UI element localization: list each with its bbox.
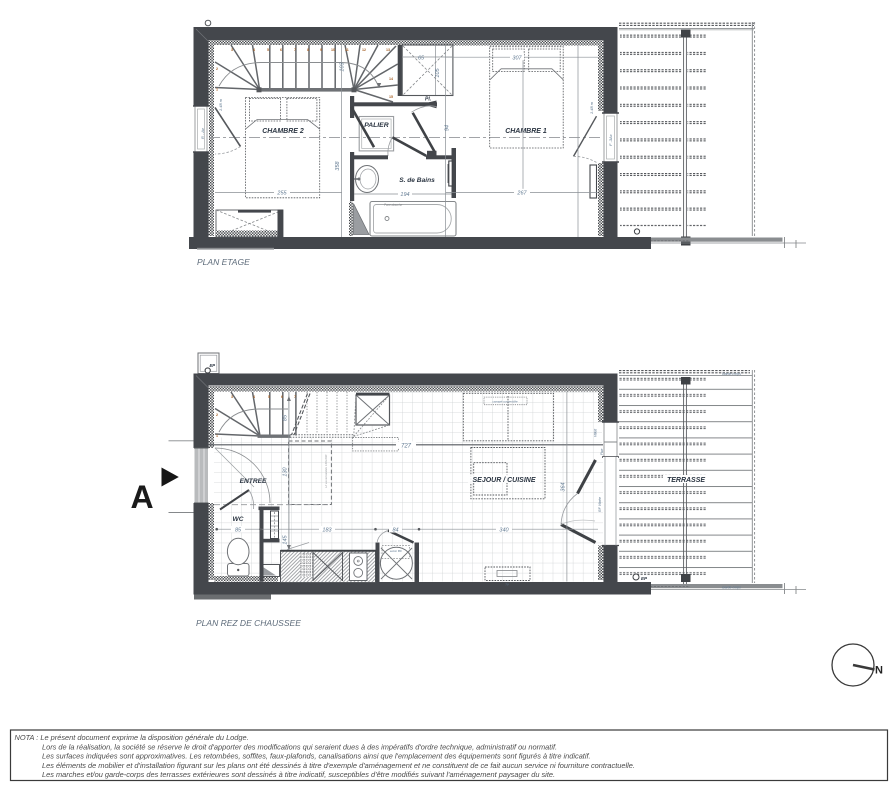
svg-text:5: 5 — [268, 395, 270, 399]
svg-text:105: 105 — [435, 67, 441, 77]
svg-text:183: 183 — [322, 528, 332, 534]
svg-text:PALIER: PALIER — [364, 122, 389, 129]
svg-text:12: 12 — [362, 48, 366, 52]
svg-text:255: 255 — [276, 190, 287, 196]
svg-text:A: A — [131, 479, 154, 515]
svg-text:CHAMBRE 2: CHAMBRE 2 — [262, 128, 304, 135]
svg-text:94: 94 — [445, 125, 451, 131]
svg-text:1: 1 — [216, 88, 218, 92]
svg-text:85: 85 — [283, 414, 289, 421]
svg-text:PLAN ETAGE: PLAN ETAGE — [197, 257, 250, 267]
svg-text:SEJOUR / CUISINE: SEJOUR / CUISINE — [472, 477, 535, 484]
svg-text:85: 85 — [235, 528, 242, 534]
svg-text:TERRASSE: TERRASSE — [667, 477, 705, 484]
svg-text:3: 3 — [231, 395, 233, 399]
svg-text:NOTA : Le présent document exp: NOTA : Le présent document exprime la di… — [15, 733, 249, 742]
svg-text:Les marches et/ou garde-corps: Les marches et/ou garde-corps des terras… — [42, 770, 555, 779]
svg-text:F -3Ac: F -3Ac — [608, 134, 613, 146]
svg-text:4: 4 — [253, 48, 255, 52]
svg-text:8: 8 — [307, 48, 309, 52]
svg-text:727: 727 — [401, 443, 412, 449]
svg-text:130: 130 — [283, 466, 289, 476]
svg-text:11: 11 — [345, 48, 349, 52]
svg-text:307: 307 — [512, 55, 522, 61]
svg-text:7: 7 — [294, 48, 296, 52]
svg-text:Les éléments de mobilier et d': Les éléments de mobilier et d'installati… — [42, 761, 635, 770]
svg-text:Garde-corps: Garde-corps — [722, 586, 741, 590]
svg-text:6: 6 — [281, 395, 283, 399]
svg-text:Garde-corps: Garde-corps — [722, 372, 741, 376]
svg-text:Lit escamotable 140x200: Lit escamotable 140x200 — [324, 454, 328, 488]
svg-text:194: 194 — [400, 192, 409, 198]
svg-text:1.48 m: 1.48 m — [589, 101, 594, 114]
svg-text:R - Av: R - Av — [200, 127, 205, 139]
svg-text:15: 15 — [389, 95, 393, 99]
svg-text:Villett: Villett — [594, 428, 598, 437]
svg-text:selon BC: selon BC — [390, 549, 403, 553]
svg-text:9: 9 — [320, 48, 322, 52]
svg-text:65: 65 — [418, 56, 425, 62]
svg-text:340: 340 — [499, 528, 509, 534]
svg-text:13: 13 — [386, 48, 390, 52]
svg-text:PLAN REZ DE CHAUSSEE: PLAN REZ DE CHAUSSEE — [196, 618, 301, 628]
svg-text:3: 3 — [231, 48, 233, 52]
svg-text:1: 1 — [216, 434, 218, 438]
svg-text:84: 84 — [392, 528, 398, 534]
svg-text:6: 6 — [280, 48, 282, 52]
svg-text:S. de Bains: S. de Bains — [399, 177, 435, 184]
svg-text:Pare-douche: Pare-douche — [384, 203, 402, 207]
svg-text:7: 7 — [294, 395, 296, 399]
svg-text:14: 14 — [389, 77, 393, 81]
svg-text:Les surfaces indiquées sont ap: Les surfaces indiquées sont approximativ… — [42, 752, 591, 761]
svg-text:10: 10 — [331, 48, 335, 52]
svg-text:4: 4 — [253, 395, 255, 399]
svg-text:WC: WC — [233, 516, 244, 523]
svg-text:EP: EP — [210, 363, 216, 368]
svg-text:CHAMBRE 1: CHAMBRE 1 — [505, 128, 547, 135]
svg-text:267: 267 — [516, 190, 527, 196]
svg-text:Fixe: Fixe — [600, 448, 604, 455]
svg-text:ENTREE: ENTREE — [240, 478, 267, 485]
svg-text:2: 2 — [216, 67, 218, 71]
svg-text:103: 103 — [340, 61, 346, 71]
svg-text:2: 2 — [216, 413, 218, 417]
svg-text:5: 5 — [267, 48, 269, 52]
svg-text:364: 364 — [561, 482, 567, 491]
svg-text:Lors de la réalisation, la soc: Lors de la réalisation, la société se ré… — [42, 742, 557, 751]
svg-text:Pl.: Pl. — [425, 97, 431, 103]
svg-text:EP: EP — [641, 576, 648, 581]
svg-text:1.48 m: 1.48 m — [218, 98, 223, 111]
svg-text:RF Vitrée: RF Vitrée — [598, 497, 602, 512]
svg-text:145: 145 — [283, 534, 289, 544]
svg-text:N: N — [875, 665, 883, 677]
svg-text:358: 358 — [335, 160, 341, 170]
svg-text:canapé convertible: canapé convertible — [492, 399, 518, 403]
